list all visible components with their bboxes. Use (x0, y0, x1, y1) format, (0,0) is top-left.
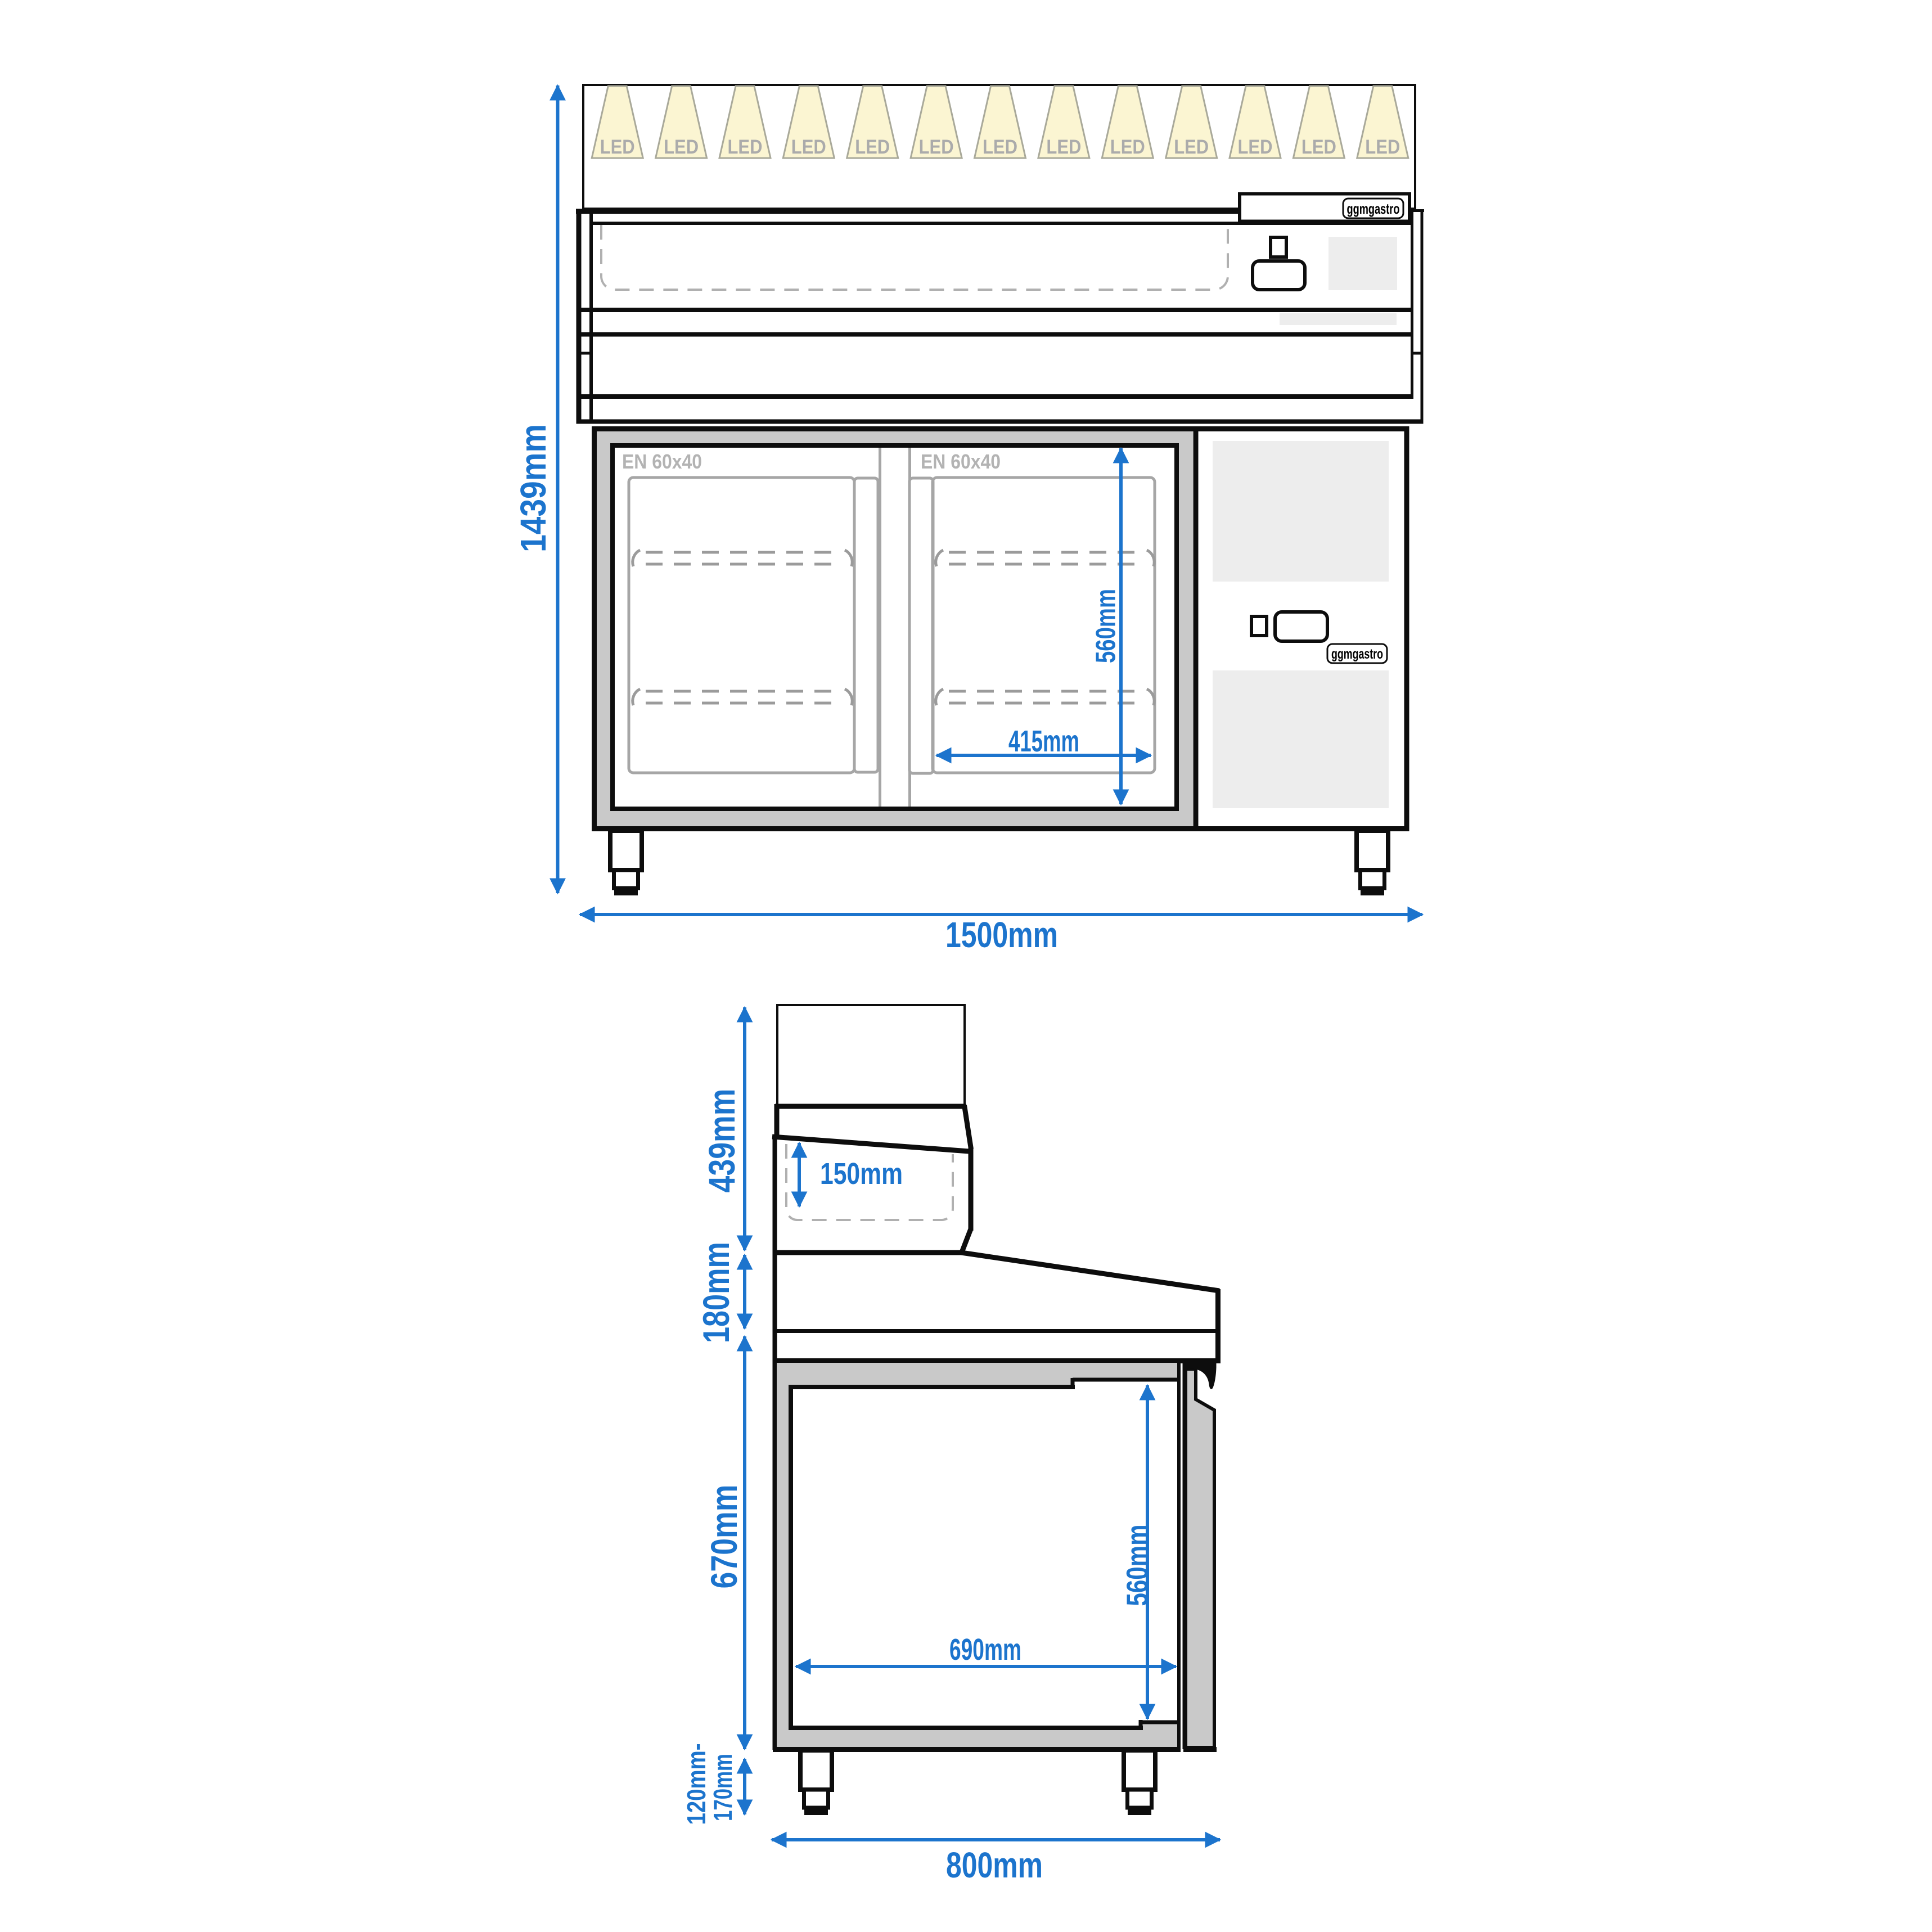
svg-text:LED: LED (983, 136, 1017, 158)
svg-text:LED: LED (855, 136, 890, 158)
svg-text:170mm: 170mm (708, 1754, 737, 1821)
svg-text:1439mm: 1439mm (513, 424, 553, 552)
svg-text:LED: LED (1110, 136, 1145, 158)
svg-text:LED: LED (1174, 136, 1209, 158)
svg-text:LED: LED (1301, 136, 1336, 158)
svg-text:LED: LED (600, 136, 635, 158)
svg-text:439mm: 439mm (701, 1089, 742, 1193)
svg-text:560mm: 560mm (1121, 1525, 1155, 1606)
svg-text:120mm-: 120mm- (682, 1744, 711, 1825)
svg-text:LED: LED (1238, 136, 1273, 158)
svg-text:150mm: 150mm (820, 1157, 903, 1191)
svg-text:LED: LED (728, 136, 763, 158)
svg-text:ggmgastro: ggmgastro (1331, 646, 1383, 662)
svg-text:LED: LED (1046, 136, 1081, 158)
svg-text:EN 60x40: EN 60x40 (622, 450, 702, 473)
svg-text:LED: LED (791, 136, 826, 158)
svg-text:670mm: 670mm (703, 1485, 745, 1589)
svg-text:LED: LED (664, 136, 699, 158)
svg-text:1500mm: 1500mm (945, 915, 1058, 955)
svg-text:690mm: 690mm (949, 1633, 1021, 1667)
svg-text:180mm: 180mm (695, 1242, 737, 1343)
svg-text:ggmgastro: ggmgastro (1347, 200, 1400, 217)
svg-text:LED: LED (1365, 136, 1400, 158)
svg-text:EN 60x40: EN 60x40 (921, 450, 1001, 473)
svg-text:415mm: 415mm (1008, 724, 1079, 758)
svg-text:LED: LED (919, 136, 954, 158)
svg-text:560mm: 560mm (1091, 589, 1122, 663)
svg-text:800mm: 800mm (946, 1845, 1043, 1885)
